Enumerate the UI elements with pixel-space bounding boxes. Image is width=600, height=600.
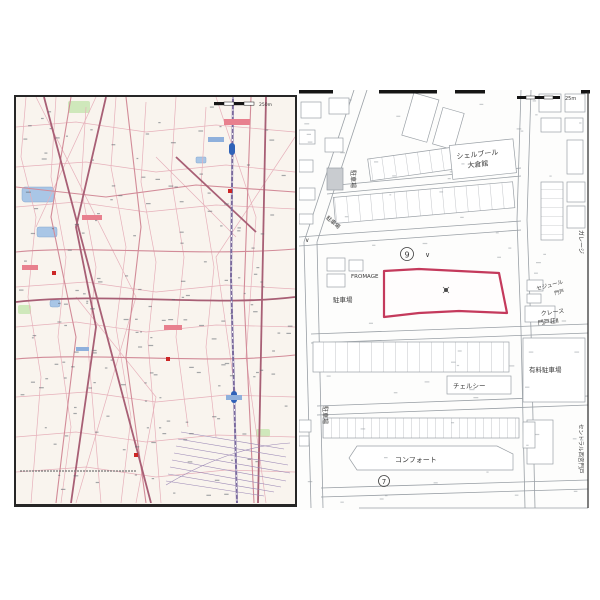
blue-area-labels bbox=[76, 137, 242, 400]
circle-7-number: 7 bbox=[382, 478, 386, 486]
parking-structure: 駐車場 bbox=[327, 168, 357, 190]
left-scale-bar: 250m bbox=[214, 102, 272, 108]
parking-mid-label: 駐車場 bbox=[333, 295, 353, 304]
parking-lower-label: 駐車場 bbox=[321, 406, 329, 424]
crece-label-1: クレース bbox=[540, 308, 564, 318]
garage-row bbox=[323, 418, 519, 438]
central-label: セントラル西宮門戸 bbox=[577, 424, 585, 474]
right-scale-label: 25m bbox=[565, 96, 576, 102]
check-mark: ∨ bbox=[425, 251, 430, 259]
building-chelsea: チェルシー bbox=[447, 376, 511, 394]
left-map-panel: 250m bbox=[14, 95, 297, 507]
right-map-panel: シェルブール 大倉館 駐車場 駐車場 ∨ 9 ∨ bbox=[299, 90, 590, 510]
garage-label: ガレージ bbox=[577, 230, 585, 254]
sejour-label-2: 門戸 bbox=[554, 289, 565, 297]
chelsea-label: チェルシー bbox=[453, 382, 486, 390]
terrace-row-mid bbox=[313, 342, 509, 372]
detail-buildings-right bbox=[523, 94, 585, 464]
comfort-label: コンフォート bbox=[395, 456, 437, 464]
circle-9-number: 9 bbox=[404, 251, 409, 260]
building-comfort: コンフォート 7 bbox=[349, 446, 513, 487]
parking-upper-label: 駐車場 bbox=[349, 170, 357, 188]
left-scale-label: 250m bbox=[259, 102, 272, 108]
left-map-canvas: 250m bbox=[16, 97, 295, 503]
building-cherbourg: シェルブール 大倉館 bbox=[449, 139, 516, 180]
right-map-canvas: シェルブール 大倉館 駐車場 駐車場 ∨ 9 ∨ bbox=[299, 90, 590, 510]
fromage-label: FROMAGE bbox=[351, 274, 379, 280]
rail-yard bbox=[166, 432, 290, 496]
paid-parking-label: 有料駐車場 bbox=[529, 365, 562, 374]
highlighted-parcel[interactable] bbox=[384, 269, 507, 317]
check-mark-2: ∨ bbox=[305, 237, 309, 244]
map-sheet: 250m bbox=[0, 0, 600, 600]
fold-marks bbox=[299, 90, 590, 94]
